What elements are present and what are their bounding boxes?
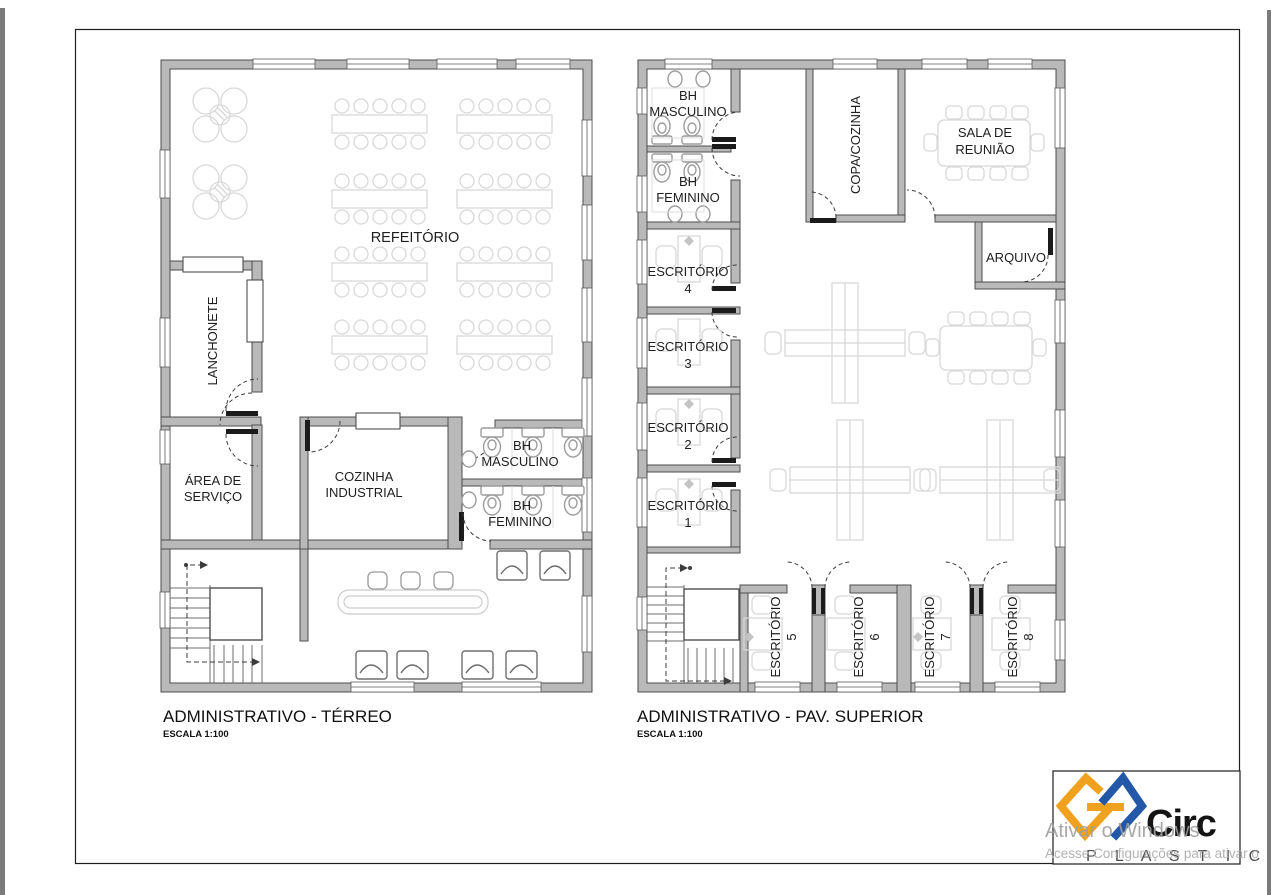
plan-title-superior: ADMINISTRATIVO - PAV. SUPERIOR	[637, 707, 924, 726]
room-label-bh-fem-2: FEMININO	[488, 514, 552, 529]
watermark-line2: Acesse Configurações para ativar o	[1045, 846, 1259, 861]
plan-scale-terreo: ESCALA 1:100	[163, 729, 229, 740]
plan-terreo: REFEITÓRIO LANCHONETE ÁREA DE SERVIÇO CO…	[160, 59, 592, 740]
room-label-esc1-1: ESCRITÓRIO	[648, 498, 729, 513]
room-label-esc4-1: ESCRITÓRIO	[648, 264, 729, 279]
room-label-bh-masc-1: BH	[679, 88, 697, 103]
room-label-esc5-1: ESCRITÓRIO	[768, 597, 783, 678]
floorplan-drawing: REFEITÓRIO LANCHONETE ÁREA DE SERVIÇO CO…	[0, 0, 1271, 895]
room-label-esc2-2: 2	[684, 437, 691, 452]
room-label-esc4-2: 4	[684, 281, 691, 296]
room-label-esc6-2: 6	[867, 633, 882, 640]
plan-title-terreo: ADMINISTRATIVO - TÉRREO	[163, 707, 392, 726]
room-label-esc7-1: ESCRITÓRIO	[922, 597, 937, 678]
room-label-area-servico-2: SERVIÇO	[184, 489, 242, 504]
room-label-bh-fem-2: FEMININO	[656, 190, 720, 205]
room-label-arquivo: ARQUIVO	[986, 250, 1046, 265]
room-label-esc6-1: ESCRITÓRIO	[851, 597, 866, 678]
room-label-esc1-2: 1	[684, 515, 691, 530]
workstation-cross	[765, 283, 1060, 540]
armchairs	[356, 551, 570, 679]
watermark-line1: Ativar o Windows	[1045, 820, 1200, 842]
room-label-esc5-2: 5	[784, 633, 799, 640]
room-label-sala-1: SALA DE	[958, 125, 1013, 140]
office-furniture-bottom	[744, 596, 1030, 670]
room-label-cozinha-2: INDUSTRIAL	[325, 485, 402, 500]
room-label-copa: COPA/COZINHA	[848, 96, 863, 194]
room-label-bh-masc-2: MASCULINO	[649, 104, 726, 119]
screen-edge-left	[0, 8, 5, 895]
plan-scale-superior: ESCALA 1:100	[637, 729, 703, 740]
room-label-bh-masc-2: MASCULINO	[481, 454, 558, 469]
room-label-esc8-2: 8	[1021, 633, 1036, 640]
stairs	[647, 564, 739, 685]
room-label-esc8-1: ESCRITÓRIO	[1005, 597, 1020, 678]
screen-edge-right	[1267, 10, 1271, 895]
room-label-area-servico-1: ÁREA DE	[185, 473, 242, 488]
room-label-bh-fem-1: BH	[513, 498, 531, 513]
doors	[712, 112, 1053, 614]
room-label-bh-masc-1: BH	[513, 438, 531, 453]
room-label-esc3-1: ESCRITÓRIO	[648, 339, 729, 354]
round-tables	[193, 88, 247, 219]
office-furniture-left	[656, 236, 722, 525]
room-label-bh-fem-1: BH	[679, 174, 697, 189]
room-label-refeitorio: REFEITÓRIO	[371, 229, 460, 246]
room-label-esc7-2: 7	[938, 633, 953, 640]
plan-superior: BH MASCULINO BH FEMININO ESCRITÓRIO 4 ES…	[637, 59, 1065, 740]
room-label-sala-2: REUNIÃO	[955, 142, 1014, 157]
room-label-esc3-2: 3	[684, 356, 691, 371]
floorplan-sheet: REFEITÓRIO LANCHONETE ÁREA DE SERVIÇO CO…	[0, 0, 1271, 895]
room-label-cozinha-1: COZINHA	[335, 469, 394, 484]
stairs	[170, 561, 262, 683]
room-label-lanchonete: LANCHONETE	[205, 296, 220, 385]
reception-furniture	[338, 551, 570, 679]
room-label-esc2-1: ESCRITÓRIO	[648, 420, 729, 435]
